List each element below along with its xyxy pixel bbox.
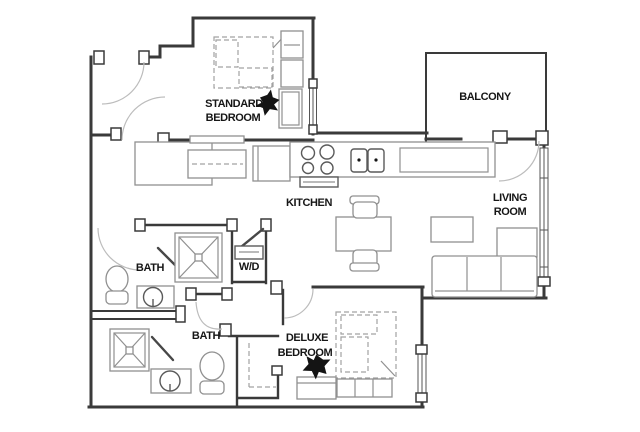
blanket-icon [341,337,368,372]
bed-icon [214,37,273,88]
bath2-hinge-cap [186,288,196,300]
bath2-door-arc [196,302,222,329]
sofa-icon [432,256,537,297]
deluxe-bedroom-label: BEDROOM [278,347,333,359]
bath1-door-post [135,219,145,231]
closet-cap [272,366,282,375]
doors [98,62,539,360]
laundry-cap-left [227,219,237,231]
wardrobe-icon [281,60,303,87]
deluxe-door-post [271,281,282,294]
bath1-door-arc [98,228,140,270]
balcony: BALCONY [426,53,546,141]
dining-chair-icon [350,250,379,271]
bath2-wall-cap [222,288,232,300]
dining-chair-icon [350,196,379,218]
bath-divider-cap [176,306,185,322]
washer-dryer: W/D [235,246,263,273]
floor-plan: BALCONY [0,0,640,432]
shower-icon [175,233,222,282]
pillow-icon [216,40,238,67]
toilet-icon [106,266,128,304]
bathroom-sink-icon [151,369,191,393]
bedroom-window [310,84,317,128]
balcony-label: BALCONY [459,91,512,103]
bath2-door-post [220,324,231,336]
standard-bedroom-label: BEDROOM [206,112,261,124]
coffee-table-icon [431,217,473,242]
deluxe-bedroom-window [418,352,426,394]
shower-icon [110,329,149,371]
entry-door-arc [102,62,144,104]
laundry-label: W/D [239,261,260,273]
living-room: LIVING ROOM [431,192,537,297]
deluxe-window-bottom-cap [416,393,427,402]
deluxe-bedroom: DELUXE BEDROOM [249,312,396,399]
living-window-top-cap [536,131,548,145]
bath-upper: BATH W/D [106,233,263,308]
wall-bath-divider [91,311,183,319]
bath-lower: BATH [110,329,224,394]
bathroom-sink-icon [137,286,174,308]
bath-upper-label: BATH [136,262,165,274]
pillow-icon [341,315,377,334]
living-room-label: LIVING [493,192,527,204]
shower2-door-leaf [152,337,173,360]
bedroom-window-top-cap [309,79,317,88]
wall-deluxe-closet [229,336,278,407]
blanket-icon [239,68,272,87]
deluxe-window-top-cap [416,345,427,354]
bedroom-window-bottom-cap [309,125,317,134]
standard-bedroom-label: STANDARD [205,98,263,110]
toilet-icon [200,352,224,394]
dining-table-icon [336,217,391,251]
desk-icon [297,377,336,399]
dresser-icon [337,379,392,397]
side-table-icon [497,228,537,257]
balcony-door-post [493,131,507,143]
kitchen-backsplash [190,136,244,143]
living-window-bottom-cap [538,277,550,286]
hall-stub-cap [111,128,121,140]
floor-plan-canvas: BALCONY [0,0,640,432]
entry-cap-left [94,51,104,64]
standard-bedroom: STANDARD BEDROOM [205,31,303,128]
balcony-door-arc [499,141,539,181]
kitchen-label: KITCHEN [286,197,333,209]
kitchen-sink-icon [351,149,384,172]
bed-fold-line [381,361,395,376]
deluxe-bedroom-label: DELUXE [286,332,328,344]
deluxe-door-arc [284,289,313,318]
bath-lower-label: BATH [192,330,221,342]
closet-rod-dashed [249,343,276,387]
living-room-window [540,148,548,281]
living-room-label: ROOM [494,206,527,218]
wall-entry-step [147,18,193,57]
dining-set [336,196,391,271]
